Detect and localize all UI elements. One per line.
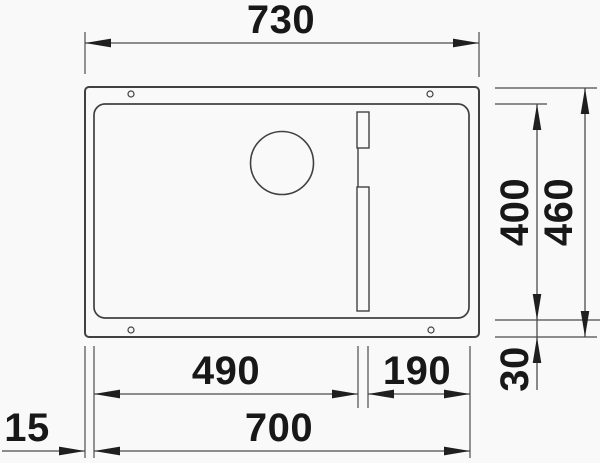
- arrowhead-left: [94, 390, 120, 399]
- sink-bowl-outline: [94, 104, 469, 318]
- mounting-hole-top-right: [427, 91, 433, 97]
- arrowhead-right: [59, 447, 85, 456]
- sink-dimension-diagram: 730 400 460 30 490: [0, 0, 600, 463]
- arrowhead-right: [444, 447, 470, 456]
- dim-label-cutout-width: 700: [245, 406, 313, 450]
- arrowhead-up: [581, 88, 590, 114]
- arrowhead-up: [533, 104, 542, 130]
- arrowhead-down: [581, 311, 590, 337]
- sink-outer-rim-outline: [85, 87, 479, 337]
- dim-label-bowl-depth: 400: [493, 178, 537, 246]
- dimension-bottom: 490 190 700 15: [2, 346, 470, 458]
- dimension-right-side: 400 460 30: [493, 88, 600, 392]
- rail-slot-lower: [357, 187, 369, 311]
- drain-hole-circle: [251, 132, 314, 195]
- dimension-overall-width: 730: [85, 0, 479, 77]
- arrowhead-left: [85, 39, 111, 48]
- technical-drawing-canvas: 730 400 460 30 490: [0, 0, 600, 463]
- dim-label-bottom-offset: 30: [493, 346, 537, 392]
- mounting-hole-bottom-right: [428, 327, 434, 333]
- dim-label-overall-depth: 460: [537, 178, 581, 246]
- arrowhead-right: [332, 390, 358, 399]
- mounting-hole-top-left: [128, 91, 134, 97]
- arrowhead-right: [453, 39, 479, 48]
- rail-slot-upper: [357, 112, 369, 148]
- sink-body: [85, 87, 479, 337]
- dim-label-left-offset: 15: [4, 406, 50, 450]
- arrowhead-down: [533, 294, 542, 320]
- dim-label-bowl-left-width: 490: [192, 349, 260, 393]
- dim-label-bowl-right-width: 190: [383, 349, 451, 393]
- arrowhead-left: [94, 447, 120, 456]
- dim-label-overall-width: 730: [247, 0, 315, 42]
- mounting-hole-bottom-left: [128, 327, 134, 333]
